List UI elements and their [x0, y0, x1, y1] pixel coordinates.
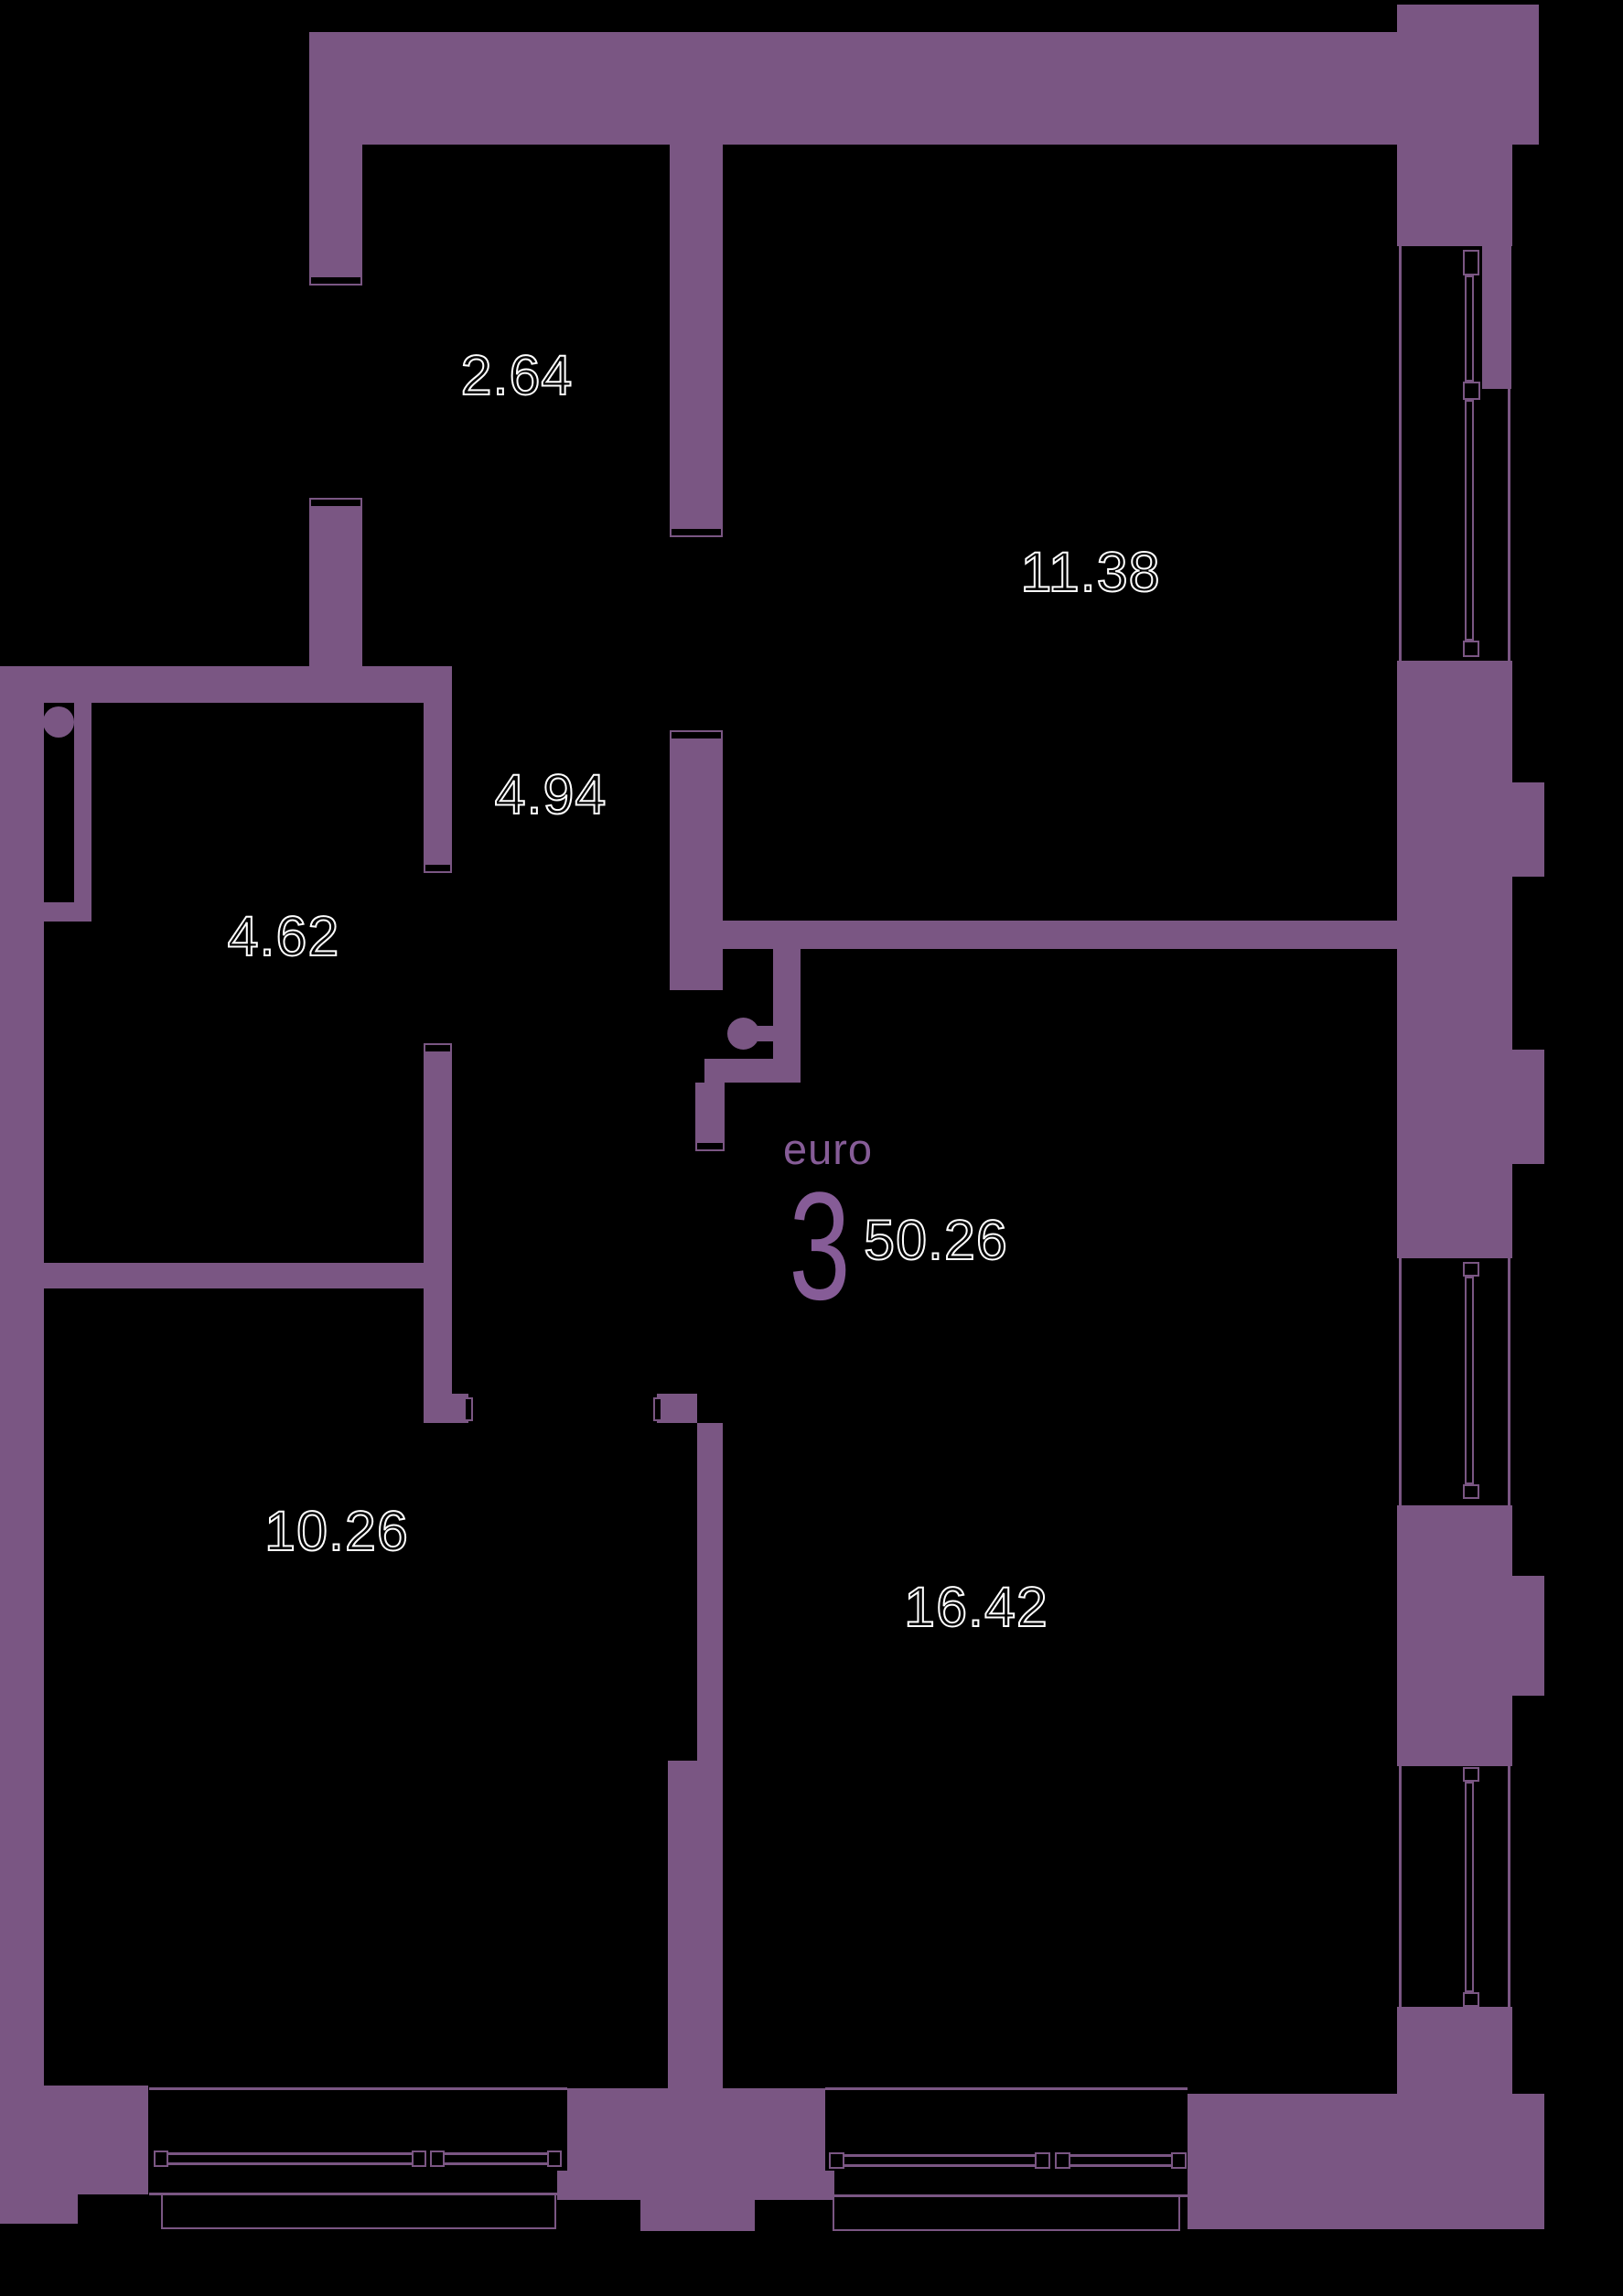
window-4-cap-left-icon — [154, 2150, 168, 2167]
door-jamb-left — [464, 1397, 473, 1421]
window-4-mullion-b-icon — [430, 2150, 445, 2167]
window-4-sash-a2-icon — [168, 2162, 412, 2165]
window-4-sash-a1-icon — [168, 2152, 412, 2155]
window-2-cap-top-icon — [1463, 1262, 1479, 1277]
window-1-reveal — [1482, 246, 1511, 389]
toilet-tank-icon — [758, 1026, 801, 1041]
wall-closet-right-upper — [670, 145, 723, 527]
window-3-cap-bottom-icon — [1463, 1992, 1479, 2007]
wall-bottom-right-block — [1188, 2094, 1544, 2229]
plumbing-riser-icon — [43, 706, 74, 738]
wall-bottom-left-corner — [0, 2086, 148, 2194]
wall-right-pilaster-2 — [1397, 1050, 1544, 1164]
window-5-sash-b2-icon — [1070, 2164, 1171, 2167]
window-5-mullion-b-icon — [1055, 2152, 1070, 2169]
window-2-cap-bottom-icon — [1463, 1484, 1479, 1499]
wall-bedroom-living-divider — [721, 921, 1397, 949]
wall-wc-left-strip — [695, 1083, 725, 1141]
wall-partition-lower — [668, 1761, 723, 2088]
door-jamb-right — [653, 1397, 662, 1421]
wall-right-e — [1397, 1505, 1512, 1766]
room-area-label-entry-closet: 2.64 — [461, 343, 574, 407]
window-2-outer-line-icon — [1508, 1258, 1510, 1505]
plumbing-riser-base — [43, 902, 91, 922]
wall-right-d — [1397, 1164, 1512, 1258]
window-4-cap-right-icon — [547, 2150, 562, 2167]
room-area-label-living-room: 16.42 — [904, 1575, 1048, 1639]
window-1-inner-line-icon — [1399, 246, 1402, 661]
room-area-label-bathroom: 4.62 — [228, 904, 340, 968]
window-4-sash-b1-icon — [445, 2152, 547, 2155]
wall-right-a — [1397, 145, 1512, 246]
window-5-sash-a2-icon — [844, 2164, 1035, 2167]
window-4-sash-b2-icon — [445, 2162, 547, 2165]
window-5-cap-right-icon — [1171, 2152, 1187, 2169]
room-area-label-bedroom-bottom: 10.26 — [264, 1499, 409, 1563]
wall-right-b — [1397, 661, 1512, 782]
window-4-sill-icon — [161, 2193, 556, 2229]
wall-right-pilaster-1 — [1397, 782, 1544, 877]
window-5-sash-b1-icon — [1070, 2154, 1171, 2157]
window-3-cap-top-icon — [1463, 1767, 1479, 1782]
wall-bottom-left-tail — [0, 2194, 78, 2224]
room-area-label-bedroom-top: 11.38 — [1020, 540, 1160, 604]
wall-right-c — [1397, 877, 1512, 1050]
window-1-cap-bottom-icon — [1463, 641, 1479, 657]
wall-bathroom-top — [0, 666, 448, 703]
wall-top-band — [309, 32, 1397, 145]
wall-bottom-pier-step — [557, 2171, 834, 2200]
wall-wc-right — [773, 949, 801, 1059]
window-5-sill-icon — [833, 2194, 1180, 2231]
wall-partition-upper — [697, 1423, 723, 1761]
wall-corridor-left-a — [424, 666, 452, 864]
plumbing-riser-strip — [74, 703, 91, 922]
door-threshold-entry-top — [309, 275, 362, 286]
window-3-sash-icon — [1465, 1782, 1474, 1992]
wall-top-right-corner — [1397, 5, 1539, 145]
wall-wc-bottom — [704, 1059, 801, 1083]
wall-left-outer — [0, 666, 44, 2086]
wall-bottom-pier-tab — [640, 2200, 755, 2231]
toilet-icon — [727, 1018, 759, 1050]
window-1-sash-b-icon — [1465, 400, 1474, 641]
room-area-label-hallway: 4.94 — [495, 762, 607, 826]
window-1-joint-icon — [1463, 382, 1480, 400]
wall-entry-upper — [309, 32, 362, 276]
window-1-cap-top-icon — [1463, 250, 1479, 275]
window-1-sash-a-icon — [1465, 275, 1474, 382]
window-4-mullion-a-icon — [412, 2150, 426, 2167]
floor-plan: 2.64 11.38 4.94 4.62 10.26 16.42 euro 3 … — [0, 0, 1623, 2296]
window-2-sash-icon — [1465, 1277, 1474, 1484]
wall-corridor-left-b — [424, 1053, 452, 1394]
wall-bottom-pier — [567, 2088, 825, 2171]
wall-corridor-foot-left — [424, 1394, 468, 1423]
door-threshold-closet — [670, 527, 723, 537]
door-threshold-bathroom-bottom — [424, 1043, 452, 1053]
window-5-inner-line-icon — [825, 2087, 1188, 2090]
unit-rooms-count: 3 — [789, 1159, 850, 1335]
door-threshold-bathroom-top — [424, 863, 452, 873]
window-4-inner-line-icon — [149, 2087, 567, 2090]
door-threshold-hall — [670, 730, 723, 740]
window-2-inner-line-icon — [1399, 1258, 1402, 1505]
wall-corridor-foot-right — [657, 1394, 697, 1423]
window-5-sash-a1-icon — [844, 2154, 1035, 2157]
wall-bathroom-bottom — [0, 1263, 425, 1288]
window-3-outer-line-icon — [1508, 1763, 1510, 2007]
door-threshold-wc — [695, 1141, 725, 1151]
window-5-cap-left-icon — [829, 2152, 844, 2169]
window-3-inner-line-icon — [1399, 1763, 1402, 2007]
total-area-label: 50.26 — [864, 1208, 1008, 1272]
wall-closet-right-lower — [670, 740, 723, 990]
window-5-mullion-a-icon — [1035, 2152, 1050, 2169]
wall-right-pilaster-3 — [1512, 1576, 1544, 1696]
wall-right-f — [1397, 2007, 1512, 2096]
